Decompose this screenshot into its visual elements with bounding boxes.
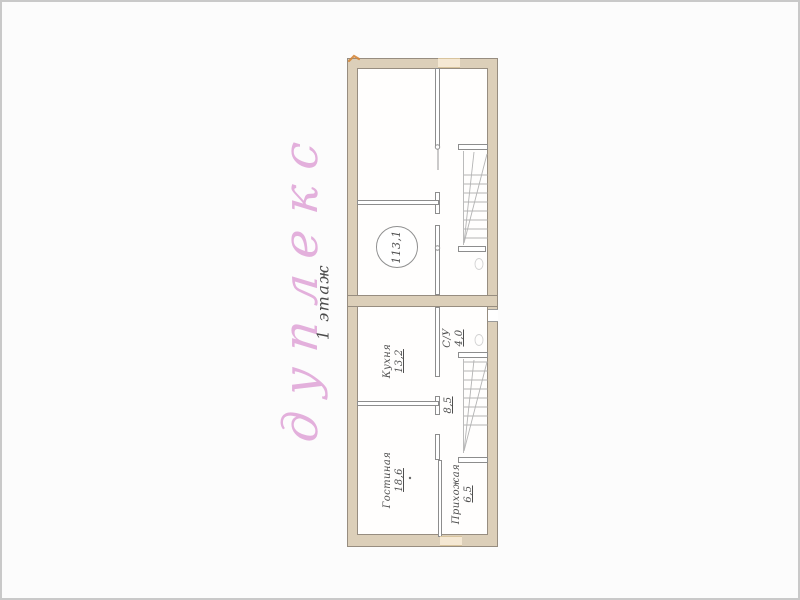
room-label-entry: Прихожая 6,5 [451, 464, 475, 524]
stairwell-wall [458, 246, 486, 252]
room-label-bathroom: С/У 4,0 [442, 328, 466, 347]
partition-wall [435, 434, 440, 460]
stairwell-wall [458, 144, 488, 150]
room-label-hallway: 8,5 [443, 396, 455, 413]
room-name: Гостиная [382, 452, 394, 509]
stairwell-wall [458, 457, 488, 463]
partition-wall [435, 68, 440, 148]
total-area-value: 113,1 [391, 230, 403, 264]
floor-number-label: 1 этаж [314, 264, 333, 340]
room-name: Прихожая [451, 464, 463, 524]
room-name: С/У [442, 328, 454, 347]
partition-wall [435, 225, 440, 295]
room-label-kitchen: Кухня 13,2 [382, 344, 406, 378]
room-label-living: Гостиная 18,6 [382, 452, 406, 509]
stairwell-wall [458, 352, 488, 358]
lower-unit-entrance-opening [440, 536, 462, 546]
room-area: 8,5 [443, 396, 455, 413]
unit-divider-wall [347, 295, 498, 307]
partition-wall [357, 200, 439, 205]
kitchen-living-wall [357, 401, 439, 406]
room-area: 13,2 [394, 344, 406, 378]
partition-wall [435, 307, 440, 377]
room-area: 18,6 [394, 452, 406, 509]
living-entry-wall [438, 460, 442, 537]
room-area: 4,0 [454, 328, 466, 347]
room-name: Кухня [382, 344, 394, 378]
room-area: 6,5 [463, 464, 475, 524]
side-wall-opening [488, 309, 498, 322]
upper-unit-entrance-opening [438, 58, 460, 68]
scanned-floor-plan-page: 113,1 Кухня 13,2 С/У 4,0 8,5 Гостиная 18… [0, 0, 800, 600]
